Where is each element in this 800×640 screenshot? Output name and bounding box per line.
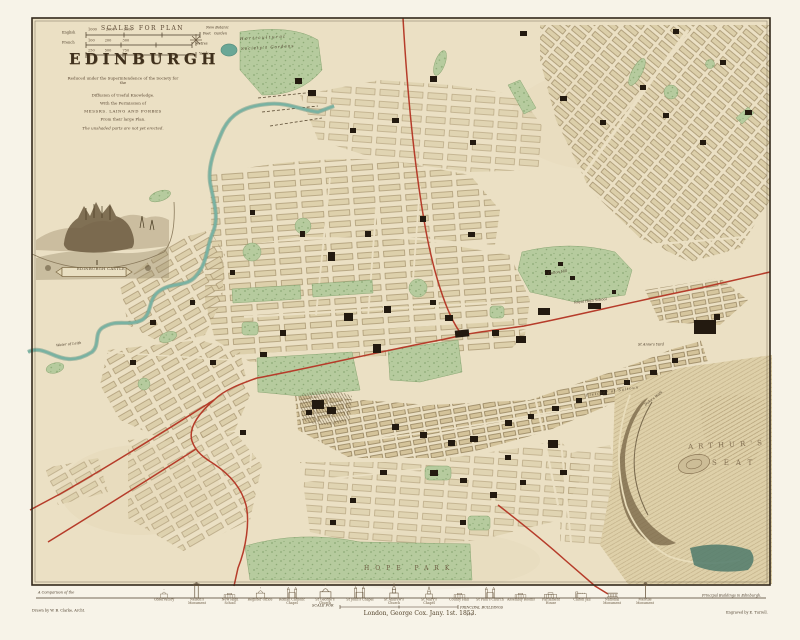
frieze-building-glyph [574, 587, 589, 598]
frieze-building: Register Office [253, 582, 268, 598]
frieze-row: ObservatoryNelson's MonumentNew High Sch… [158, 582, 656, 598]
comparison-right: Principal Buildings in Edinburgh. [702, 594, 761, 598]
frieze-building-label: New High School [216, 598, 244, 605]
frieze-building-glyph [482, 586, 498, 598]
comparison-left: A Comparison of the [38, 591, 74, 595]
frieze-building: Calton Jail [574, 582, 589, 598]
engraved-by: Engraved by E. Turrell. [726, 611, 768, 615]
frieze-building: Roman Catholic Chapel [284, 582, 300, 598]
frieze-building-label: Parliament House [537, 598, 565, 605]
frieze-building: St John's Chapel [351, 582, 368, 598]
frieze-building-label: St Andrew's Church [380, 598, 408, 605]
frieze-building: St Andrew's Church [384, 582, 404, 598]
frieze-building-glyph [316, 584, 335, 598]
frieze-building-glyph [421, 586, 437, 598]
frieze-building-glyph [351, 585, 368, 598]
frieze-building: New High School [223, 582, 236, 598]
frieze-building: Observatory [158, 582, 170, 598]
frieze-building-label: St Paul's Church [476, 598, 504, 601]
frieze-building: Assembly Rooms [514, 582, 527, 598]
scale-right-1: Feet [203, 32, 211, 36]
frieze-building-glyph [606, 588, 619, 598]
label-seat: SEAT [712, 460, 759, 467]
frieze-building-glyph [453, 588, 466, 598]
label-new-botanic-2: Garden [214, 32, 227, 36]
label-new-botanic-1: New Botanic [206, 26, 229, 30]
scale-left-2: French [62, 41, 75, 45]
subtitle-line: With the Permission of [64, 101, 181, 106]
frieze-building-glyph [543, 587, 558, 598]
castle-rock [300, 391, 352, 425]
frieze-building: St George's Church [316, 582, 335, 598]
station-block [455, 329, 470, 337]
frieze-building-glyph [186, 582, 207, 598]
label-vignette-ribbon: EDINBURGH CASTLE [77, 267, 111, 271]
frieze-building-label: St George's Church [311, 598, 339, 605]
frieze-building-label: County Hall [445, 598, 473, 601]
frieze-building-label: Observatory [150, 598, 178, 601]
frieze-building: Nelson's Monument [186, 582, 207, 598]
mini-scale-right: PRINCIPAL BUILDINGS [460, 606, 503, 610]
frieze-building-label: St Mary's Chapel [415, 598, 443, 605]
frieze-building: County Hall [453, 582, 466, 598]
frieze-building-glyph [635, 582, 656, 598]
subtitle-line: From their large Plan. [64, 117, 181, 122]
plate-number: 170 [466, 613, 473, 617]
label-hope-park: HOPE PARK [364, 566, 455, 572]
frieze-building-glyph [284, 586, 300, 598]
frieze-building-label: Nelson's Monument [183, 598, 211, 605]
subtitle-line: Reduced under the Superintendence of the… [64, 76, 181, 85]
frieze-building-label: Melville Monument [631, 598, 659, 605]
frieze-building-label: Calton Jail [568, 598, 596, 601]
frieze-building-label: St John's Chapel [346, 598, 374, 601]
scale-right-2: Metres [195, 42, 208, 46]
canonmills-loch [221, 44, 237, 56]
frieze-building: St Mary's Chapel [421, 582, 437, 598]
subtitle-line: MESSRS. LAING AND FORBES [64, 109, 181, 114]
frieze-building-glyph [253, 587, 268, 598]
frieze-building: St Paul's Church [482, 582, 498, 598]
frieze-building-glyph [223, 588, 236, 598]
scale-ticks-1: 1000 2000 3000 [88, 28, 133, 32]
frieze-building: Parliament House [543, 582, 558, 598]
drawn-by: Drawn by W. B. Clarke, Archt. [32, 609, 85, 613]
label-st-annes-yard: St Anne's Yard [638, 343, 664, 347]
frieze-building-glyph [514, 588, 527, 598]
map-title: EDINBURGH [69, 50, 220, 68]
frieze-building: Melville Monument [635, 582, 656, 598]
frieze-building-glyph [384, 583, 404, 598]
frieze-building-label: Assembly Rooms [507, 598, 535, 601]
frieze-building-label: Register Office [246, 598, 274, 601]
frieze-building: National Monument [606, 582, 619, 598]
map-sheet: SCALES FOR PLAN 1000 2000 3000 100 200 3… [0, 0, 800, 640]
frieze-building-label: National Monument [598, 598, 626, 605]
subtitle-line: The unshaded parts are not yet erected. [64, 126, 181, 131]
frieze-building-label: Roman Catholic Chapel [278, 598, 306, 605]
scale-ticks-2: 100 200 300 [88, 39, 129, 43]
subtitle-line: Diffusion of Useful Knowledge. [64, 93, 181, 98]
scale-left-1: English [62, 31, 75, 35]
map-subtitle: Reduced under the Superintendence of the… [20, 76, 226, 134]
imprint: London, George Cox. Jany. 1st. 1853. [340, 611, 500, 617]
holyrood-palace [694, 320, 716, 334]
